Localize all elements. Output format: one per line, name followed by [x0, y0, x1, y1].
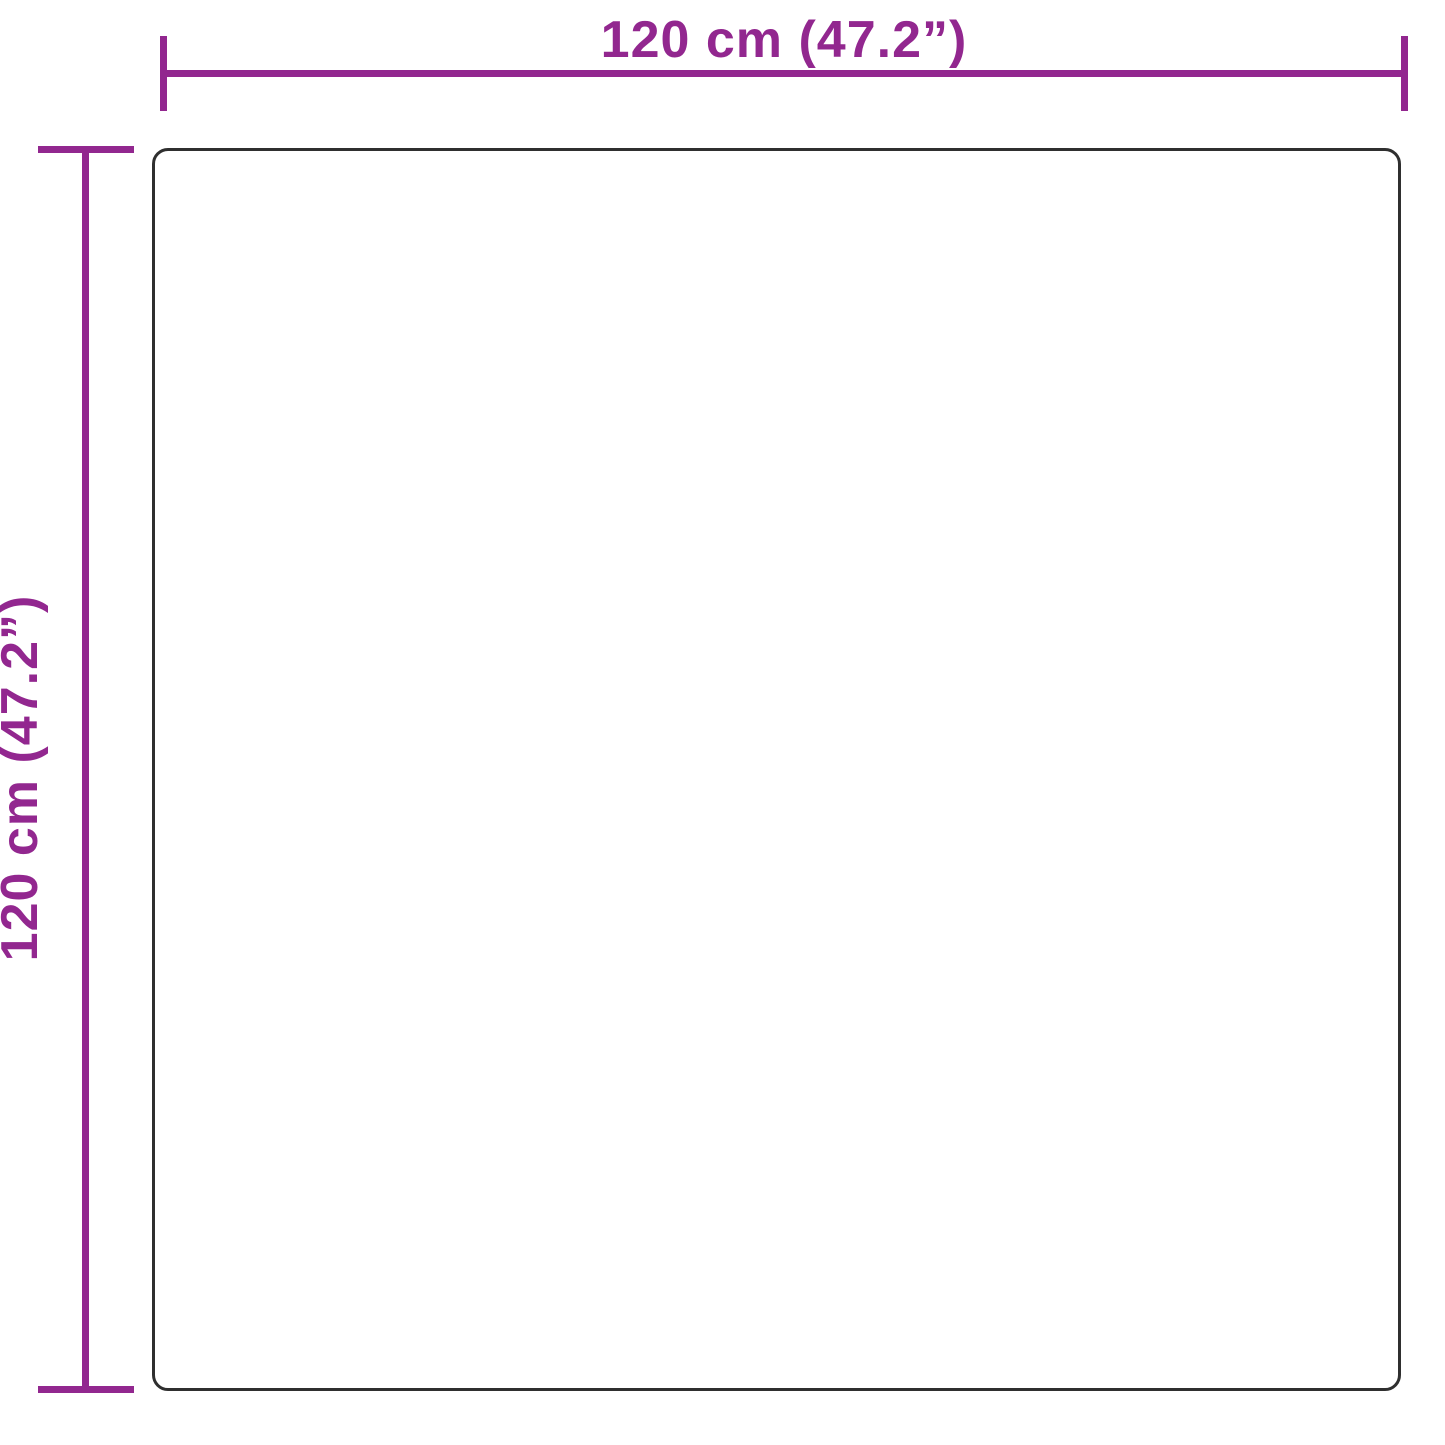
dimension-diagram: 120 cm (47.2”) 120 cm (47.2”) — [0, 0, 1445, 1445]
width-dimension-line — [163, 70, 1405, 77]
width-dimension-label: 120 cm (47.2”) — [163, 14, 1405, 66]
height-dimension-line — [82, 150, 89, 1390]
height-dimension-tick-top — [38, 146, 134, 153]
product-outline-square — [152, 148, 1401, 1391]
height-dimension-tick-bottom — [38, 1386, 134, 1393]
height-dimension-label: 120 cm (47.2”) — [0, 158, 46, 1398]
